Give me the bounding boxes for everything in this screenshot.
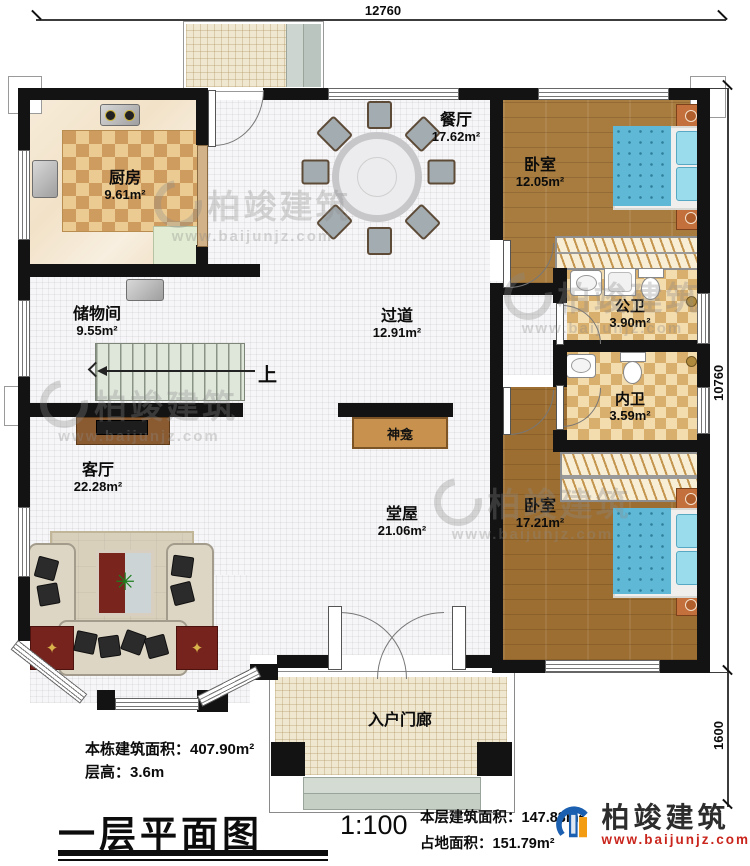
sofa-cushion xyxy=(73,630,98,655)
dim-line-top xyxy=(36,19,726,21)
kitchen-sink xyxy=(32,160,58,198)
room-label-bedroom1: 卧室 12.05m² xyxy=(495,157,585,189)
bedroom1-window xyxy=(538,88,669,100)
wall-segment xyxy=(490,295,503,375)
bed1-pillow xyxy=(676,167,699,201)
room-label-inner-bath: 内卫 3.59m² xyxy=(585,392,675,423)
wall-segment xyxy=(20,88,196,100)
room-label-entry-porch: 入户门廊 xyxy=(350,712,450,730)
floor-plan-canvas: ✳ ✦ ✦ 神龛 厨房 9.61m² 餐厅 17.62m² 卧室 12.05m² xyxy=(0,0,750,866)
room-label-living: 客厅 22.28m² xyxy=(53,462,143,494)
dim-label-top: 12760 xyxy=(352,3,414,18)
wall-segment xyxy=(18,375,30,507)
hall-bottom-wall-left xyxy=(277,655,332,668)
plant-icon: ✳ xyxy=(115,571,135,595)
sofa-cushion xyxy=(98,635,122,659)
sofa-cushion xyxy=(171,555,195,579)
dining-chair xyxy=(428,160,456,185)
wall-segment xyxy=(196,88,208,145)
porch-step-1 xyxy=(303,777,481,794)
bed2-blanket xyxy=(613,508,671,594)
dining-chair xyxy=(367,101,392,129)
storage-window xyxy=(18,300,30,377)
wall-segment xyxy=(263,88,328,100)
room-label-public-bath: 公卫 3.90m² xyxy=(585,299,675,330)
bedroom2-door-leaf xyxy=(503,387,511,435)
shower-head-icon xyxy=(686,356,697,367)
stairs-up-label: 上 xyxy=(258,360,277,387)
public-bath-door-leaf xyxy=(556,303,564,345)
kitchen-sliding-door xyxy=(197,145,208,247)
porch-pillar-left xyxy=(271,742,305,776)
wall-segment xyxy=(457,88,538,100)
brand-site: www.baijunjz.com xyxy=(601,832,750,847)
rear-porch-floor xyxy=(186,24,286,87)
room-label-hall: 堂屋 21.06m² xyxy=(357,506,447,538)
inner-bath-toilet xyxy=(620,352,644,384)
room-label-storage: 储物间 9.55m² xyxy=(42,306,152,338)
room-label-kitchen: 厨房 9.61m² xyxy=(80,170,170,202)
wall-segment xyxy=(18,575,30,641)
kitchen-bottom-wall xyxy=(20,264,260,277)
building-area-note: 本栋建筑面积：407.90m² xyxy=(85,738,254,759)
stairs-direction-line xyxy=(107,370,255,372)
shower-head-icon xyxy=(686,296,697,307)
room-label-bedroom2: 卧室 17.21m² xyxy=(495,498,585,530)
wall-segment xyxy=(697,88,710,293)
room-label-dining: 餐厅 17.62m² xyxy=(406,112,506,144)
stairs xyxy=(95,343,245,401)
wall-segment xyxy=(697,432,710,673)
bedroom1-closet xyxy=(555,236,701,270)
dim-extension xyxy=(710,88,728,89)
kitchen-window xyxy=(18,150,30,240)
shrine-label: 神龛 xyxy=(387,424,413,443)
entry-door-jamb-right xyxy=(452,606,466,670)
storage-sink xyxy=(126,279,164,301)
inner-bath-door-leaf xyxy=(556,385,564,430)
shrine-table: 神龛 xyxy=(352,417,448,449)
floor-height-note: 层高：3.6m xyxy=(85,761,164,782)
stove-burner xyxy=(105,110,116,121)
inner-bath-bottom-wall xyxy=(553,440,710,452)
bed2-pillow xyxy=(676,514,699,548)
dim-label-porch: 1600 xyxy=(711,712,726,760)
public-bath-toilet xyxy=(638,268,662,300)
dining-chair xyxy=(367,227,392,255)
dining-window xyxy=(328,88,459,100)
shrine-wall xyxy=(338,403,453,417)
footprint-note: 占地面积：151.79m² xyxy=(420,832,555,853)
brand-logo: 柏竣建筑 www.baijunjz.com xyxy=(556,790,750,860)
stove-burner xyxy=(124,110,135,121)
dining-chair xyxy=(302,160,330,185)
dining-table xyxy=(332,132,422,222)
title-underline-thin xyxy=(58,859,328,861)
plan-scale: 1:100 xyxy=(340,810,408,841)
dim-label-right: 10760 xyxy=(711,350,726,416)
bedroom2-window xyxy=(545,660,660,673)
public-bath-sink xyxy=(570,270,602,296)
bay-window-bottom xyxy=(115,698,199,710)
stove xyxy=(100,104,140,126)
bedroom1-door-leaf xyxy=(503,240,511,288)
entry-door-jamb-left xyxy=(328,606,342,670)
wall-segment xyxy=(18,88,30,150)
wall-segment xyxy=(492,660,545,673)
bed2-pillow xyxy=(676,551,699,585)
porch-pillar-right xyxy=(477,742,512,776)
bay-corner xyxy=(97,690,115,710)
tv xyxy=(96,420,148,435)
rear-porch-strip-2 xyxy=(303,24,321,87)
wall-segment xyxy=(490,375,503,387)
wall-segment xyxy=(553,352,567,385)
public-bath-window xyxy=(697,293,710,344)
title-underline-thick xyxy=(58,850,328,856)
dim-extension xyxy=(710,672,728,673)
toilet-bowl xyxy=(641,277,660,300)
bed1-pillow xyxy=(676,131,699,165)
rear-porch-strip-1 xyxy=(286,24,304,87)
brand-logo-icon xyxy=(556,796,593,854)
side-table-right: ✦ xyxy=(176,626,218,670)
storage-living-wall xyxy=(30,403,243,417)
brand-name: 柏竣建筑 xyxy=(601,804,750,832)
public-bath-shower xyxy=(604,268,636,296)
bed1-blanket xyxy=(613,126,671,206)
wall-segment xyxy=(658,660,710,673)
kitchen-counter xyxy=(153,226,198,266)
dim-line-porch xyxy=(727,673,729,807)
room-label-corridor: 过道 12.91m² xyxy=(347,308,447,340)
coffee-table: ✳ xyxy=(96,550,154,616)
rear-door-leaf xyxy=(208,90,216,147)
living-window xyxy=(18,507,30,577)
dim-line-right xyxy=(727,88,729,673)
inner-bath-window xyxy=(697,387,710,434)
toilet-bowl xyxy=(623,361,642,384)
wall-segment xyxy=(553,268,567,303)
inner-bath-sink xyxy=(566,354,596,378)
wall-segment xyxy=(553,430,567,440)
sofa-cushion xyxy=(36,582,60,606)
